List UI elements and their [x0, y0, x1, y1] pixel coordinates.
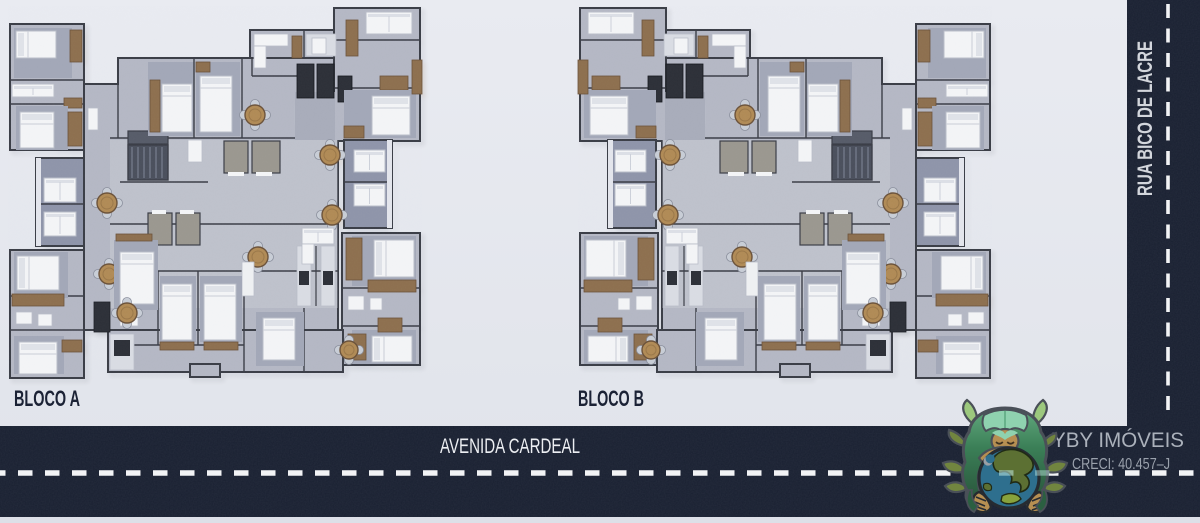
svg-text:BLOCO B: BLOCO B: [578, 386, 644, 411]
svg-text:YBY IMÓVEIS: YBY IMÓVEIS: [1052, 429, 1184, 452]
svg-text:BLOCO A: BLOCO A: [14, 386, 80, 411]
svg-text:RUA BICO DE LACRE: RUA BICO DE LACRE: [1134, 41, 1157, 196]
svg-text:CRECI: 40.457–J: CRECI: 40.457–J: [1072, 456, 1170, 473]
svg-text:AVENIDA CARDEAL: AVENIDA CARDEAL: [440, 435, 580, 458]
